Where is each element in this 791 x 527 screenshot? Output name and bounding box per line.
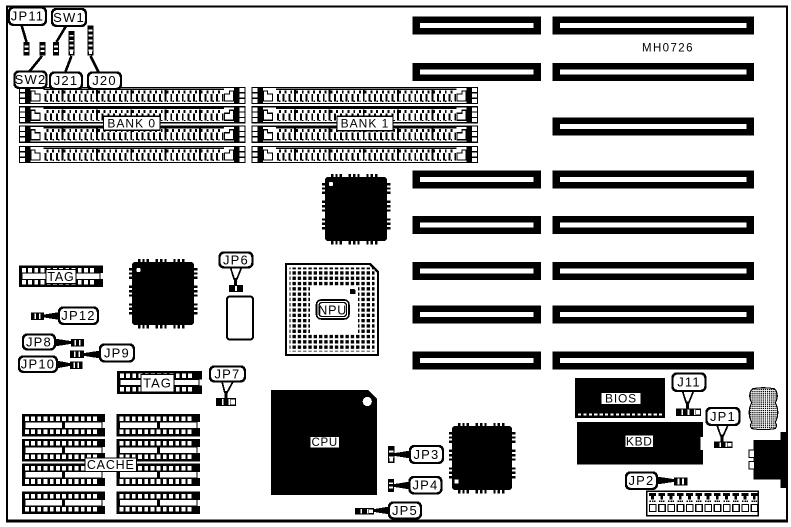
svg-text:JP12: JP12: [61, 308, 95, 323]
svg-text:JP8: JP8: [26, 334, 52, 349]
svg-text:CACHE: CACHE: [87, 458, 135, 472]
svg-text:SW1: SW1: [53, 10, 85, 25]
svg-text:BANK 1: BANK 1: [341, 117, 390, 131]
svg-text:JP6: JP6: [223, 252, 249, 267]
svg-text:J21: J21: [54, 73, 79, 88]
svg-text:JP9: JP9: [104, 345, 130, 360]
svg-text:JP5: JP5: [392, 503, 418, 518]
svg-text:JP7: JP7: [214, 366, 240, 381]
svg-text:NPU: NPU: [318, 304, 347, 318]
svg-text:BIOS: BIOS: [605, 392, 637, 406]
svg-text:MH0726: MH0726: [642, 43, 694, 55]
svg-text:BANK 0: BANK 0: [107, 116, 156, 130]
svg-text:TAG: TAG: [143, 376, 172, 391]
svg-text:JP3: JP3: [413, 447, 439, 462]
svg-text:J11: J11: [677, 375, 701, 390]
svg-text:JP4: JP4: [412, 478, 438, 493]
svg-text:KBD: KBD: [626, 434, 653, 448]
svg-text:CPU: CPU: [312, 437, 338, 449]
svg-text:JP2: JP2: [628, 473, 654, 488]
svg-text:JP10: JP10: [21, 357, 55, 372]
svg-text:TAG: TAG: [47, 270, 74, 284]
svg-text:J20: J20: [92, 73, 117, 88]
svg-text:JP1: JP1: [710, 409, 736, 424]
svg-text:JP11: JP11: [11, 9, 44, 24]
svg-text:SW2: SW2: [15, 72, 47, 87]
